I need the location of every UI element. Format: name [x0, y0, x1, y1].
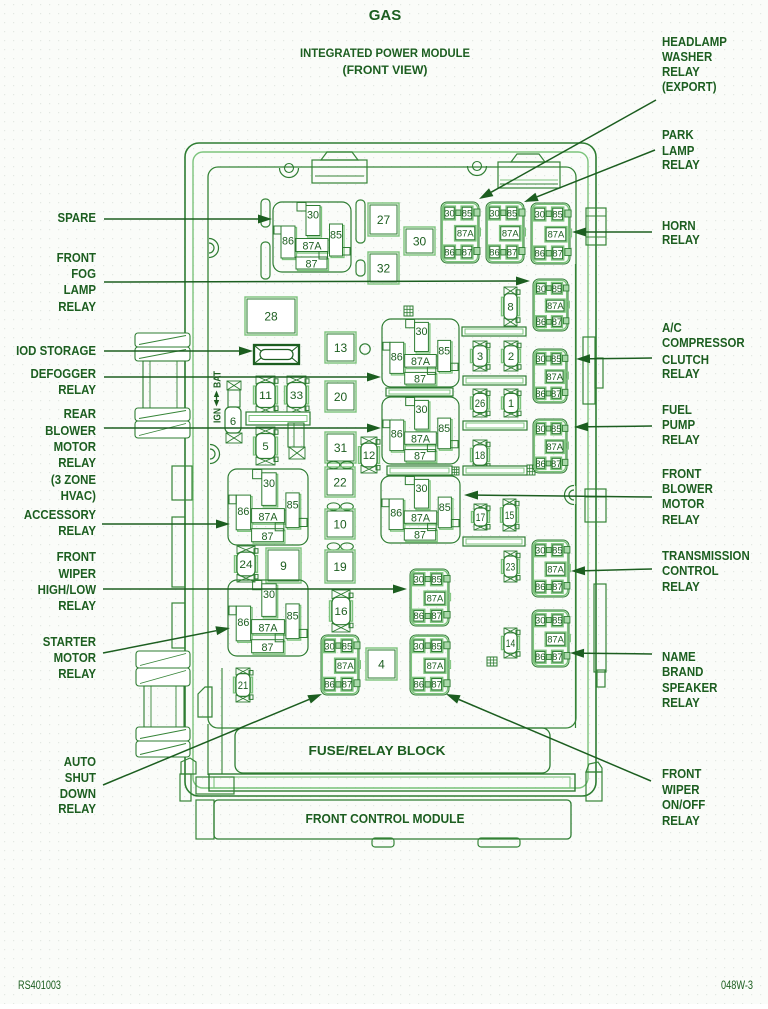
svg-text:30: 30	[414, 574, 424, 585]
svg-text:FRONT: FRONT	[662, 466, 701, 481]
svg-text:30: 30	[535, 615, 545, 626]
svg-text:SPEAKER: SPEAKER	[662, 680, 718, 695]
svg-text:85: 85	[552, 208, 562, 219]
svg-text:RELAY: RELAY	[662, 579, 700, 594]
svg-text:REAR: REAR	[64, 406, 97, 421]
svg-text:32: 32	[377, 261, 391, 275]
svg-text:11: 11	[259, 390, 272, 402]
svg-text:10: 10	[333, 517, 347, 531]
svg-text:86: 86	[535, 581, 545, 592]
svg-text:WIPER: WIPER	[662, 782, 700, 797]
svg-text:30: 30	[489, 207, 499, 218]
svg-text:MOTOR: MOTOR	[662, 496, 705, 511]
svg-text:87A: 87A	[411, 434, 431, 446]
svg-text:87: 87	[431, 610, 441, 621]
svg-text:CONTROL: CONTROL	[662, 563, 719, 578]
svg-text:30: 30	[416, 483, 428, 495]
svg-text:30: 30	[414, 640, 424, 651]
svg-text:RELAY: RELAY	[58, 455, 96, 470]
svg-text:BRAND: BRAND	[662, 664, 703, 679]
svg-text:13: 13	[334, 341, 348, 355]
svg-text:12: 12	[363, 450, 376, 462]
svg-text:TRANSMISSION: TRANSMISSION	[662, 548, 750, 563]
svg-text:30: 30	[535, 423, 545, 434]
svg-text:8: 8	[507, 302, 513, 314]
svg-text:WIPER: WIPER	[59, 566, 97, 581]
svg-text:6: 6	[230, 416, 236, 428]
svg-text:2: 2	[508, 351, 514, 363]
svg-text:HVAC): HVAC)	[61, 488, 96, 503]
svg-text:87A: 87A	[259, 512, 279, 524]
svg-text:87: 87	[262, 642, 274, 654]
svg-text:30: 30	[444, 207, 454, 218]
svg-text:87: 87	[551, 458, 561, 469]
svg-text:20: 20	[334, 390, 348, 404]
svg-text:15: 15	[505, 510, 515, 522]
svg-text:FUSE/RELAY BLOCK: FUSE/RELAY BLOCK	[309, 743, 447, 758]
svg-text:18: 18	[475, 450, 486, 462]
svg-text:24: 24	[239, 559, 252, 571]
svg-text:1: 1	[508, 398, 514, 410]
svg-text:87: 87	[462, 246, 472, 257]
svg-text:LAMP: LAMP	[662, 143, 695, 158]
svg-text:048W-3: 048W-3	[721, 978, 753, 992]
svg-text:87A: 87A	[547, 634, 564, 645]
svg-text:AUTO: AUTO	[64, 754, 96, 769]
svg-text:FRONT: FRONT	[57, 549, 96, 564]
svg-text:FRONT CONTROL MODULE: FRONT CONTROL MODULE	[306, 811, 465, 826]
svg-text:RELAY: RELAY	[58, 801, 96, 816]
svg-text:RELAY: RELAY	[58, 299, 96, 314]
svg-text:85: 85	[462, 207, 472, 218]
svg-text:(FRONT VIEW): (FRONT VIEW)	[343, 63, 428, 77]
svg-text:85: 85	[330, 230, 342, 242]
svg-text:RELAY: RELAY	[662, 813, 700, 828]
svg-text:RELAY: RELAY	[662, 232, 700, 247]
svg-text:86: 86	[282, 236, 294, 248]
svg-text:86: 86	[391, 351, 403, 363]
svg-text:30: 30	[535, 353, 545, 364]
svg-text:85: 85	[342, 640, 352, 651]
svg-text:MOTOR: MOTOR	[54, 439, 97, 454]
svg-text:87A: 87A	[427, 593, 444, 604]
svg-text:PUMP: PUMP	[662, 417, 695, 432]
svg-text:30: 30	[535, 208, 545, 219]
svg-text:MOTOR: MOTOR	[54, 650, 97, 665]
svg-text:30: 30	[263, 589, 275, 601]
svg-text:ON/OFF: ON/OFF	[662, 797, 705, 812]
svg-text:85: 85	[551, 423, 561, 434]
svg-text:RELAY: RELAY	[58, 382, 96, 397]
svg-text:87A: 87A	[411, 513, 431, 525]
svg-text:86: 86	[414, 679, 424, 690]
svg-text:14: 14	[506, 638, 516, 650]
svg-text:87: 87	[414, 530, 426, 542]
svg-text:30: 30	[263, 478, 275, 490]
svg-text:85: 85	[552, 615, 562, 626]
svg-text:87A: 87A	[427, 660, 444, 671]
svg-text:85: 85	[439, 502, 451, 514]
svg-text:86: 86	[444, 246, 454, 257]
svg-text:COMPRESSOR: COMPRESSOR	[662, 335, 745, 350]
svg-text:85: 85	[552, 545, 562, 556]
svg-text:30: 30	[536, 283, 546, 294]
svg-text:86: 86	[414, 610, 424, 621]
svg-text:(3 ZONE: (3 ZONE	[51, 472, 96, 487]
svg-text:30: 30	[416, 326, 428, 338]
svg-text:87: 87	[262, 531, 274, 543]
svg-text:BLOWER: BLOWER	[45, 423, 96, 438]
svg-text:21: 21	[238, 680, 249, 692]
svg-text:86: 86	[535, 388, 545, 399]
svg-text:INTEGRATED POWER MODULE: INTEGRATED POWER MODULE	[300, 46, 470, 60]
svg-text:26: 26	[475, 398, 486, 410]
svg-text:87A: 87A	[502, 228, 519, 239]
svg-text:RELAY: RELAY	[662, 157, 700, 172]
svg-text:5: 5	[262, 441, 268, 453]
svg-text:85: 85	[551, 353, 561, 364]
svg-text:30: 30	[307, 210, 319, 222]
svg-text:3: 3	[477, 351, 483, 363]
svg-text:(EXPORT): (EXPORT)	[662, 79, 717, 94]
svg-text:27: 27	[377, 213, 391, 227]
svg-text:28: 28	[264, 309, 278, 323]
svg-text:SHUT: SHUT	[65, 770, 96, 785]
svg-text:RELAY: RELAY	[662, 366, 700, 381]
svg-text:IGN: IGN	[212, 408, 224, 423]
svg-text:86: 86	[535, 247, 545, 258]
svg-text:86: 86	[237, 506, 249, 518]
svg-text:86: 86	[237, 617, 249, 629]
svg-text:RELAY: RELAY	[58, 523, 96, 538]
svg-text:HEADLAMP: HEADLAMP	[662, 34, 727, 49]
svg-text:85: 85	[287, 500, 299, 512]
svg-text:CLUTCH: CLUTCH	[662, 352, 709, 367]
svg-text:87: 87	[552, 247, 562, 258]
svg-text:86: 86	[324, 679, 334, 690]
svg-text:86: 86	[390, 508, 402, 520]
svg-text:BLOWER: BLOWER	[662, 481, 713, 496]
svg-text:87A: 87A	[547, 564, 564, 575]
svg-text:17: 17	[476, 512, 486, 524]
svg-text:DOWN: DOWN	[60, 786, 96, 801]
svg-text:FOG: FOG	[71, 266, 96, 281]
svg-text:23: 23	[506, 562, 516, 574]
svg-text:HIGH/LOW: HIGH/LOW	[38, 582, 97, 597]
svg-text:RELAY: RELAY	[662, 64, 700, 79]
svg-text:4: 4	[378, 657, 385, 671]
svg-text:19: 19	[333, 560, 347, 574]
svg-text:87: 87	[552, 651, 562, 662]
svg-text:IOD STORAGE: IOD STORAGE	[16, 343, 96, 358]
svg-text:SPARE: SPARE	[58, 210, 97, 225]
svg-text:86: 86	[391, 429, 403, 441]
svg-text:87A: 87A	[546, 371, 563, 382]
svg-text:PARK: PARK	[662, 127, 694, 142]
svg-text:9: 9	[280, 559, 287, 573]
svg-text:30: 30	[324, 640, 334, 651]
svg-text:87: 87	[552, 581, 562, 592]
svg-text:BAT: BAT	[212, 371, 224, 388]
svg-text:STARTER: STARTER	[43, 634, 97, 649]
svg-text:WASHER: WASHER	[662, 49, 713, 64]
svg-text:FRONT: FRONT	[662, 766, 701, 781]
svg-text:85: 85	[431, 640, 441, 651]
svg-text:RELAY: RELAY	[58, 598, 96, 613]
svg-text:85: 85	[507, 207, 517, 218]
svg-text:87A: 87A	[457, 228, 474, 239]
svg-text:87A: 87A	[546, 441, 563, 452]
svg-text:30: 30	[413, 234, 427, 248]
svg-text:DEFOGGER: DEFOGGER	[31, 366, 97, 381]
svg-text:LAMP: LAMP	[64, 282, 97, 297]
svg-text:33: 33	[290, 390, 303, 402]
svg-text:85: 85	[438, 423, 450, 435]
svg-text:87A: 87A	[548, 229, 565, 240]
svg-text:FUEL: FUEL	[662, 402, 692, 417]
svg-text:85: 85	[431, 574, 441, 585]
svg-text:RS401003: RS401003	[18, 978, 61, 992]
svg-text:RELAY: RELAY	[58, 666, 96, 681]
svg-text:FRONT: FRONT	[57, 250, 96, 265]
svg-text:31: 31	[334, 441, 348, 455]
svg-text:87: 87	[414, 374, 426, 386]
svg-text:RELAY: RELAY	[662, 512, 700, 527]
svg-text:GAS: GAS	[369, 7, 402, 24]
svg-text:85: 85	[552, 283, 562, 294]
svg-text:NAME: NAME	[662, 649, 696, 664]
svg-text:A/C: A/C	[662, 320, 682, 335]
svg-text:87A: 87A	[337, 660, 354, 671]
svg-text:ACCESSORY: ACCESSORY	[24, 507, 96, 522]
svg-text:86: 86	[536, 316, 546, 327]
svg-text:85: 85	[287, 611, 299, 623]
svg-text:22: 22	[333, 475, 347, 489]
svg-text:16: 16	[334, 606, 347, 618]
svg-text:RELAY: RELAY	[662, 432, 700, 447]
svg-text:87: 87	[507, 246, 517, 257]
svg-text:87: 87	[414, 451, 426, 463]
svg-text:30: 30	[416, 404, 428, 416]
svg-text:87: 87	[342, 679, 352, 690]
svg-text:HORN: HORN	[662, 218, 696, 233]
svg-text:87A: 87A	[303, 241, 323, 253]
svg-text:87: 87	[431, 679, 441, 690]
svg-text:87: 87	[306, 259, 318, 271]
svg-text:RELAY: RELAY	[662, 695, 700, 710]
svg-text:87A: 87A	[547, 300, 564, 311]
svg-text:86: 86	[535, 458, 545, 469]
svg-text:87: 87	[551, 388, 561, 399]
svg-text:30: 30	[535, 545, 545, 556]
svg-text:85: 85	[438, 346, 450, 358]
svg-text:87: 87	[552, 316, 562, 327]
svg-text:87A: 87A	[259, 623, 279, 635]
svg-text:86: 86	[535, 651, 545, 662]
svg-text:86: 86	[489, 246, 499, 257]
svg-text:87A: 87A	[411, 356, 431, 368]
